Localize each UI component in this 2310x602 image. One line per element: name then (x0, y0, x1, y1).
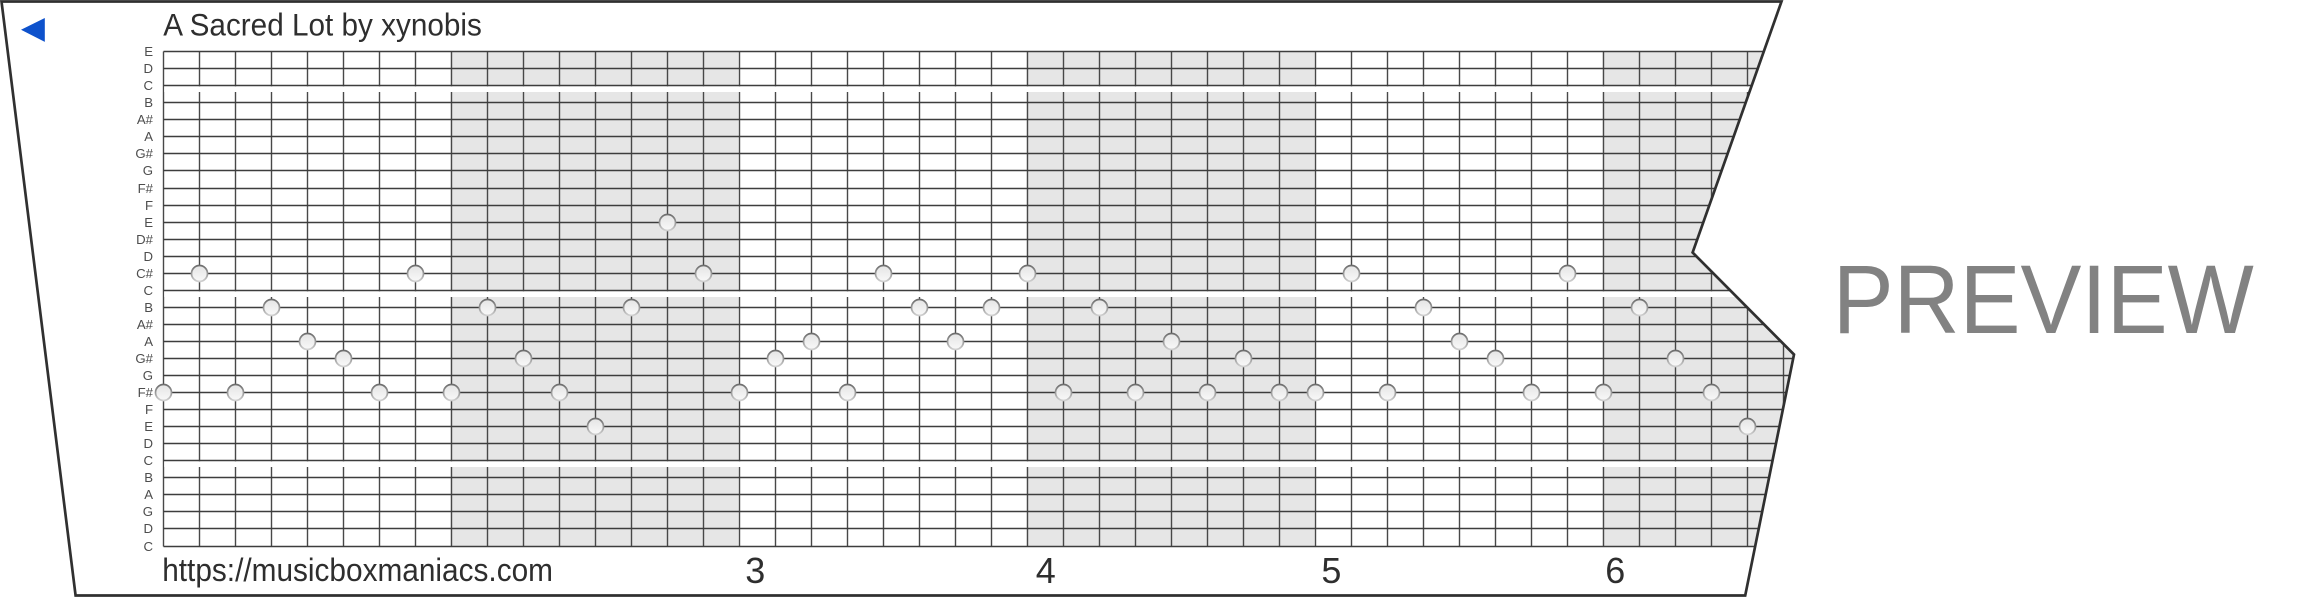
svg-text:F: F (145, 402, 153, 417)
svg-text:G#: G# (135, 351, 153, 366)
svg-text:A: A (144, 487, 153, 502)
svg-text:G#: G# (135, 146, 153, 161)
svg-text:F#: F# (138, 385, 154, 400)
svg-text:B: B (144, 470, 153, 485)
svg-text:E: E (144, 215, 153, 230)
svg-text:B: B (144, 95, 153, 110)
svg-text:4: 4 (1036, 550, 1056, 591)
svg-text:F#: F# (138, 181, 154, 196)
svg-text:PREVIEW: PREVIEW (1833, 245, 2254, 353)
svg-text:G: G (143, 504, 153, 519)
svg-text:3: 3 (745, 550, 765, 591)
svg-text:D: D (143, 436, 153, 451)
svg-text:A: A (144, 129, 153, 144)
svg-text:A: A (144, 334, 153, 349)
svg-text:G: G (143, 368, 153, 383)
svg-text:C#: C# (136, 266, 154, 281)
svg-text:E: E (144, 44, 153, 59)
svg-text:A Sacred Lot by xynobis: A Sacred Lot by xynobis (163, 8, 482, 43)
svg-text:A#: A# (137, 317, 154, 332)
svg-text:F: F (145, 198, 153, 213)
svg-text:https://musicboxmaniacs.com: https://musicboxmaniacs.com (162, 552, 553, 588)
svg-text:A#: A# (137, 112, 154, 127)
svg-text:C: C (143, 539, 153, 554)
svg-text:C: C (143, 283, 153, 298)
svg-text:D: D (143, 249, 153, 264)
svg-text:E: E (144, 419, 153, 434)
svg-text:D: D (143, 521, 153, 536)
svg-text:5: 5 (1321, 550, 1341, 591)
svg-text:B: B (144, 300, 153, 315)
svg-text:D#: D# (136, 232, 154, 247)
svg-text:D: D (143, 61, 153, 76)
svg-text:G: G (143, 163, 153, 178)
svg-text:6: 6 (1605, 550, 1625, 591)
svg-text:C: C (143, 453, 153, 468)
svg-text:C: C (143, 78, 153, 93)
